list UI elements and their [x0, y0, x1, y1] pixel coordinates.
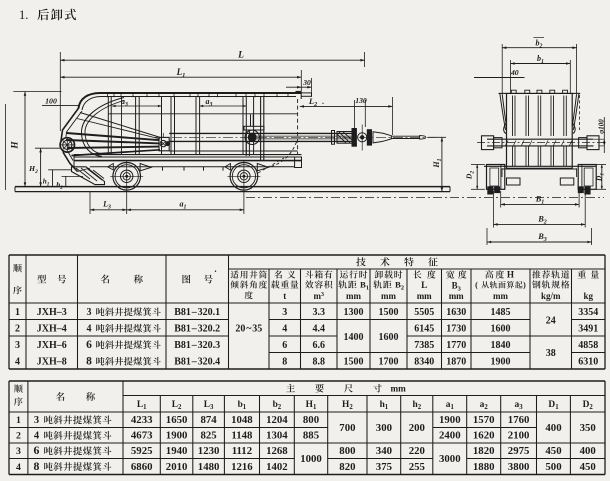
- svg-text:1400: 1400: [344, 332, 364, 343]
- svg-text:mm: mm: [449, 291, 464, 301]
- svg-text:4.4: 4.4: [313, 324, 326, 335]
- svg-text:t: t: [283, 291, 286, 301]
- svg-text:h1: h1: [380, 400, 389, 411]
- svg-text:L: L: [421, 280, 427, 290]
- svg-text:3.3: 3.3: [313, 307, 326, 318]
- svg-text:255: 255: [409, 461, 425, 473]
- svg-text:kg: kg: [583, 291, 593, 301]
- svg-text:1: 1: [15, 307, 20, 318]
- svg-text:B1: B1: [360, 280, 369, 292]
- svg-text:b1: b1: [238, 400, 247, 411]
- svg-text:6: 6: [282, 340, 287, 351]
- svg-text:3491: 3491: [578, 324, 598, 335]
- svg-text:300: 300: [376, 422, 392, 434]
- svg-text:H: H: [10, 141, 20, 150]
- svg-text:2010: 2010: [166, 461, 188, 473]
- svg-text:h2: h2: [56, 181, 63, 191]
- svg-text:B81 – 320.3: B81 – 320.3: [174, 340, 220, 351]
- svg-text:·: ·: [214, 267, 217, 277]
- svg-text:2400: 2400: [439, 430, 461, 442]
- svg-text:4: 4: [87, 324, 92, 335]
- svg-text:4: 4: [282, 324, 287, 335]
- svg-text:B2: B2: [395, 280, 404, 292]
- svg-text:4673: 4673: [131, 430, 153, 442]
- svg-text:6860: 6860: [131, 461, 153, 473]
- svg-text:820: 820: [339, 461, 355, 473]
- svg-text:B2: B2: [537, 214, 547, 225]
- svg-text:B1: B1: [535, 194, 545, 205]
- svg-text:6: 6: [86, 339, 92, 351]
- svg-text:1650: 1650: [166, 414, 188, 426]
- svg-text:1900: 1900: [166, 430, 188, 442]
- svg-text:1700: 1700: [379, 357, 399, 368]
- svg-text:h2: h2: [412, 400, 421, 411]
- svg-text:100: 100: [45, 96, 57, 105]
- svg-text:1216: 1216: [231, 461, 253, 473]
- svg-text:4: 4: [16, 462, 21, 473]
- svg-text:3800: 3800: [508, 461, 530, 473]
- svg-text:20 ~ 35: 20 ~ 35: [235, 324, 262, 335]
- svg-text:B81 – 320.4: B81 – 320.4: [174, 357, 220, 368]
- svg-text:b2: b2: [273, 400, 282, 411]
- svg-text:2: 2: [16, 431, 21, 442]
- svg-text:φ100: φ100: [597, 119, 605, 134]
- svg-text:6145: 6145: [414, 324, 434, 335]
- svg-text:130: 130: [355, 96, 367, 105]
- svg-text:H2: H2: [28, 164, 38, 175]
- svg-text:4: 4: [34, 431, 40, 442]
- svg-text:mm: mm: [346, 291, 361, 301]
- svg-text:1.: 1.: [19, 8, 28, 22]
- svg-text:1204: 1204: [266, 414, 288, 426]
- svg-text:kg/m: kg/m: [541, 291, 561, 301]
- svg-text:L3: L3: [204, 400, 214, 411]
- svg-text:7385: 7385: [414, 340, 434, 351]
- svg-text:1900: 1900: [491, 357, 511, 368]
- svg-text:24: 24: [546, 315, 556, 326]
- svg-text:mm: mm: [391, 383, 407, 393]
- svg-text:825: 825: [200, 430, 216, 442]
- svg-text:1840: 1840: [491, 340, 511, 351]
- svg-text:3: 3: [282, 307, 287, 318]
- svg-text:1770: 1770: [446, 340, 466, 351]
- svg-text:2975: 2975: [508, 445, 530, 457]
- svg-text:1880: 1880: [473, 461, 495, 473]
- svg-text:1300: 1300: [344, 307, 364, 318]
- svg-text:4: 4: [15, 357, 20, 368]
- svg-text:JXH–6: JXH–6: [37, 340, 67, 351]
- svg-text:1485: 1485: [491, 307, 511, 318]
- svg-text:(: (: [475, 281, 478, 290]
- svg-text:1048: 1048: [231, 414, 253, 426]
- svg-text:38: 38: [546, 348, 556, 359]
- svg-text:220: 220: [409, 445, 425, 457]
- svg-text:1630: 1630: [446, 307, 466, 318]
- svg-text:3000: 3000: [439, 453, 461, 465]
- svg-text:D2: D2: [583, 400, 594, 411]
- svg-text:450: 450: [580, 461, 596, 473]
- svg-text:1900: 1900: [439, 414, 461, 426]
- svg-text:1570: 1570: [473, 414, 495, 426]
- svg-text:375: 375: [376, 461, 392, 473]
- svg-text:1600: 1600: [491, 324, 511, 335]
- svg-text:4858: 4858: [578, 340, 598, 351]
- svg-text:L3: L3: [102, 200, 111, 211]
- svg-text:1500: 1500: [379, 307, 399, 318]
- svg-text:1: 1: [16, 415, 21, 426]
- svg-text:30: 30: [302, 78, 311, 87]
- svg-text:800: 800: [339, 445, 355, 457]
- svg-text:1480: 1480: [198, 461, 220, 473]
- svg-text:3354: 3354: [578, 307, 598, 318]
- svg-text:1870: 1870: [446, 357, 466, 368]
- svg-text:mm: mm: [381, 291, 396, 301]
- svg-text:a1: a1: [180, 200, 187, 211]
- svg-text:1600: 1600: [379, 332, 399, 343]
- svg-text:8.8: 8.8: [313, 357, 326, 368]
- svg-text:JXH–3: JXH–3: [37, 307, 67, 318]
- svg-text:H: H: [507, 270, 514, 280]
- svg-text:3: 3: [34, 415, 39, 426]
- svg-text:874: 874: [200, 414, 217, 426]
- svg-text:1940: 1940: [166, 445, 188, 457]
- svg-text:6.6: 6.6: [313, 340, 326, 351]
- svg-text:JXH–8: JXH–8: [37, 357, 67, 368]
- svg-text:885: 885: [303, 430, 319, 442]
- svg-text:1820: 1820: [473, 445, 495, 457]
- svg-text:8: 8: [34, 459, 40, 473]
- svg-text:mm: mm: [417, 291, 432, 301]
- svg-text:340: 340: [376, 445, 392, 457]
- svg-text:40: 40: [510, 68, 519, 77]
- svg-text:1402: 1402: [266, 461, 288, 473]
- svg-text:B3: B3: [537, 232, 547, 243]
- svg-text:3: 3: [16, 446, 21, 457]
- svg-text:L2: L2: [172, 400, 182, 411]
- svg-text:B81 – 320.2: B81 – 320.2: [174, 324, 220, 335]
- svg-text:400: 400: [545, 422, 561, 434]
- svg-text:3: 3: [15, 340, 20, 351]
- svg-text:5505: 5505: [414, 307, 434, 318]
- svg-text:): ): [523, 281, 526, 290]
- svg-text:L: L: [237, 51, 244, 61]
- svg-text:500: 500: [545, 461, 561, 473]
- svg-text:D2: D2: [465, 171, 476, 180]
- svg-text:m3: m3: [314, 291, 325, 301]
- svg-text:1500: 1500: [344, 357, 364, 368]
- svg-text:800: 800: [303, 414, 319, 426]
- svg-text:1304: 1304: [266, 430, 288, 442]
- svg-text:8340: 8340: [414, 357, 434, 368]
- svg-text:4233: 4233: [131, 414, 153, 426]
- svg-text:mm: mm: [493, 291, 508, 301]
- svg-text:350: 350: [580, 422, 596, 434]
- svg-text:JXH–4: JXH–4: [37, 324, 67, 335]
- svg-text:700: 700: [339, 422, 355, 434]
- svg-text:450: 450: [545, 445, 561, 457]
- svg-text:H2: H2: [342, 400, 353, 411]
- svg-text:6: 6: [34, 443, 40, 457]
- svg-text:6310: 6310: [578, 357, 598, 368]
- svg-text:a1: a1: [446, 400, 455, 411]
- svg-text:8: 8: [282, 357, 287, 368]
- svg-text:200: 200: [409, 422, 425, 434]
- svg-text:D1: D1: [548, 400, 559, 411]
- svg-text:1268: 1268: [266, 445, 288, 457]
- svg-text:1620: 1620: [473, 430, 495, 442]
- svg-text:B81 – 320.1: B81 – 320.1: [174, 307, 220, 318]
- svg-text:2100: 2100: [508, 430, 530, 442]
- svg-text:1112: 1112: [232, 445, 252, 457]
- svg-text:8: 8: [86, 356, 92, 368]
- svg-text:H1: H1: [306, 400, 317, 411]
- svg-text:L1: L1: [137, 400, 147, 411]
- svg-text:1148: 1148: [231, 430, 253, 442]
- svg-text:1230: 1230: [198, 445, 220, 457]
- svg-text:.: .: [322, 97, 324, 106]
- svg-text:3: 3: [87, 307, 92, 318]
- svg-text:1000: 1000: [300, 453, 322, 465]
- svg-text:5925: 5925: [131, 445, 153, 457]
- svg-text:400: 400: [580, 445, 596, 457]
- svg-text:a2: a2: [480, 400, 489, 411]
- svg-text:a3: a3: [515, 400, 524, 411]
- svg-text:2: 2: [15, 324, 20, 335]
- svg-text:1730: 1730: [446, 324, 466, 335]
- svg-text:1760: 1760: [508, 414, 530, 426]
